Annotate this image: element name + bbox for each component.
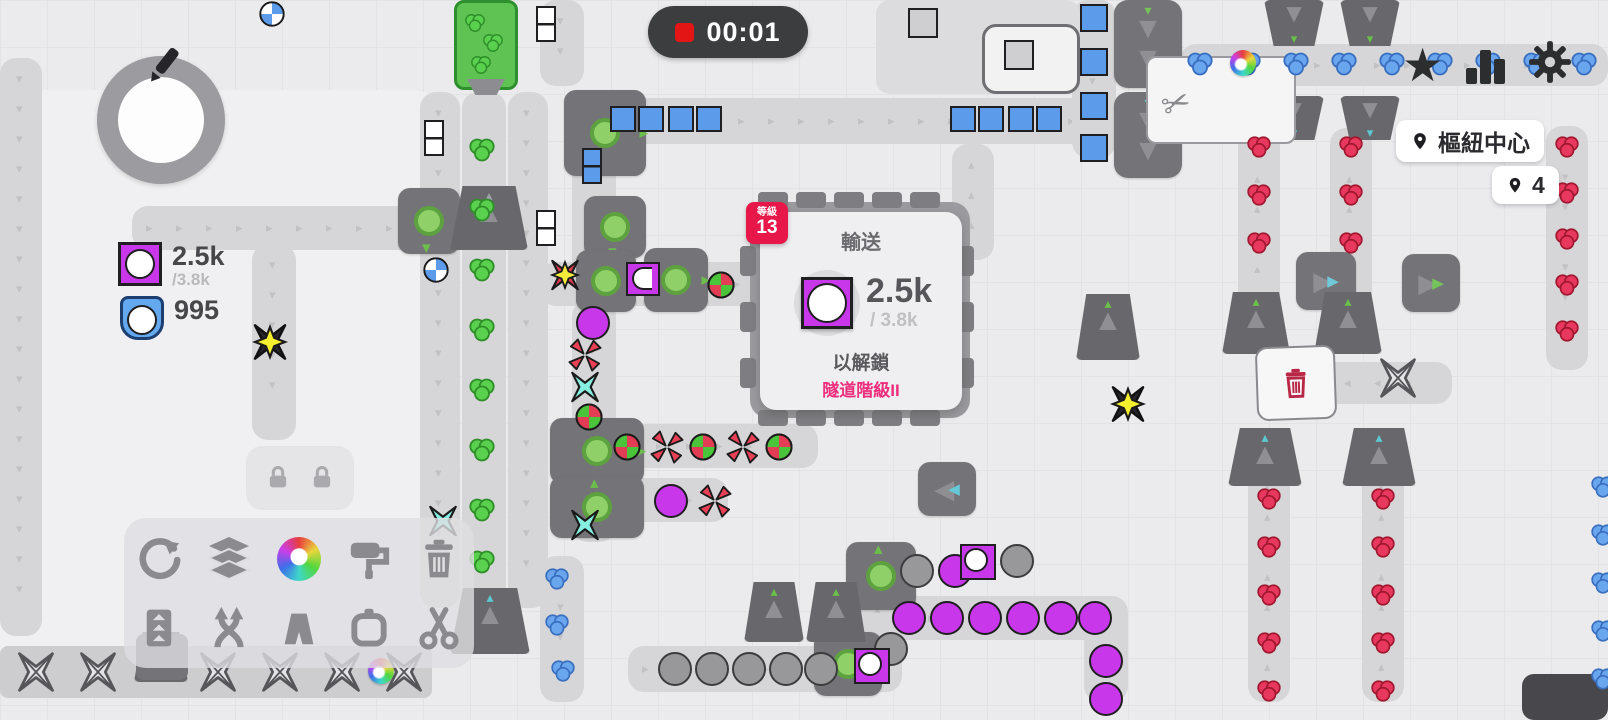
belt-chevron: ▴	[1378, 660, 1385, 673]
flow-arrow-icon: ▾	[422, 239, 431, 256]
red-berry-item	[1246, 134, 1272, 160]
belt-chevron: ▸	[888, 114, 895, 127]
bar-1	[1466, 68, 1477, 84]
belt-chevron: ▾	[16, 282, 23, 295]
circle-shape-item	[658, 652, 692, 686]
belt-chevron: ▾	[16, 162, 23, 175]
painted-target-item	[960, 544, 996, 580]
window-shape-item	[1004, 40, 1034, 70]
window-shape-item	[1080, 92, 1108, 120]
red-berry-item	[1338, 182, 1364, 208]
tunnel-arrow-icon: ▾	[1367, 32, 1374, 45]
rotate-button[interactable]	[131, 531, 187, 587]
lock-icon	[264, 464, 292, 492]
resource-target: /3.8k	[172, 270, 225, 290]
balancer-port	[866, 561, 896, 591]
balancer-machine[interactable]: ▸	[564, 90, 646, 176]
belt-chevron: ▾	[269, 288, 276, 301]
scissors-icon	[416, 605, 462, 651]
goal-unlock-text: 以解鎖	[760, 348, 962, 375]
belt-chevron: ▾	[435, 346, 442, 359]
circle-shape-item	[1089, 644, 1123, 678]
tunnel-arrow-icon: ▲	[1241, 304, 1271, 334]
belt-chevron: ▾	[435, 406, 442, 419]
red-trash-icon	[1278, 365, 1313, 400]
belt-chevron: ▴	[1264, 660, 1271, 673]
red-berry-item	[1370, 534, 1396, 560]
blue-gem-item	[1282, 50, 1310, 78]
yellow-star-item	[1108, 384, 1148, 424]
window-shape-item	[668, 106, 694, 132]
direction-triangle-icon: ▶	[1432, 276, 1444, 291]
green-gem-item	[468, 376, 496, 404]
tunnel-arrow-icon: ▲	[1364, 440, 1394, 470]
belt-chevron: ▾	[523, 556, 530, 569]
domino-shape-item	[582, 148, 602, 184]
uncolored-star-item	[1376, 356, 1420, 400]
hub-tooth	[740, 358, 756, 388]
pie-shape-item	[612, 432, 642, 462]
hub-tooth	[872, 410, 902, 426]
resource-counter-blue: 995	[120, 296, 219, 340]
hub-tooth	[796, 192, 826, 208]
belt-chevron: ▸	[266, 221, 273, 234]
balancer-port	[591, 266, 621, 296]
blue-gem-item	[1590, 618, 1608, 644]
blue-pie-shape-item	[422, 256, 450, 284]
frame-button[interactable]	[341, 600, 397, 656]
belt-chevron: ▾	[523, 436, 530, 449]
belt-chevron: ▾	[16, 402, 23, 415]
blue-gem-item	[1570, 50, 1598, 78]
red-berry-item	[1370, 486, 1396, 512]
blue-gem-item	[1330, 50, 1358, 78]
belt-chevron: ▾	[16, 522, 23, 535]
pie-shape-item	[688, 432, 718, 462]
cyan-star-item	[568, 508, 602, 542]
trash-icon	[417, 537, 461, 581]
belt-chevron: ▾	[523, 286, 530, 299]
belt-chevron: ▾	[435, 376, 442, 389]
tunnel-icon	[276, 605, 322, 651]
draw-mode-button[interactable]	[97, 50, 189, 142]
green-gem-item	[468, 316, 496, 344]
belt-chevron: ▾	[16, 372, 23, 385]
yellow-red-star-item	[548, 258, 582, 292]
tunnel-arrow-icon: ▲	[1250, 440, 1280, 470]
tunnel-entrance[interactable]: ▴▲	[1076, 294, 1140, 360]
window-shape-item	[696, 106, 722, 132]
delete-button[interactable]	[411, 531, 467, 587]
belt-chevron: ▾	[435, 166, 442, 179]
belt-chevron: ▾	[435, 466, 442, 479]
belt-lift-button[interactable]	[131, 600, 187, 656]
window-shape-item	[1080, 134, 1108, 162]
belt-chevron: ▸	[642, 662, 649, 675]
tunnel-entrance[interactable]: ▴▲	[1228, 428, 1302, 486]
balancer-machine[interactable]: ▾	[584, 196, 646, 258]
hub-marker-label: 樞紐中心	[1438, 124, 1530, 158]
belt-chevron: ▸	[768, 114, 775, 127]
circle-shape-item	[1044, 601, 1078, 635]
belt-chevron: ▴	[1254, 262, 1261, 275]
pin-count-value: 4	[1532, 172, 1545, 199]
bar-chart-icon[interactable]	[1466, 48, 1505, 84]
belt-chevron: ▾	[523, 136, 530, 149]
goal-reward: 隧道階級II	[760, 376, 962, 401]
tunnel-arrow-icon: ▲	[759, 594, 789, 624]
tunnel-arrow-icon: ▼	[1357, 0, 1383, 26]
belt-chevron: ▸	[828, 114, 835, 127]
balancer-port	[661, 265, 691, 295]
goal-shape	[794, 270, 860, 336]
belt-chevron: ▾	[557, 14, 564, 27]
paint-roller-icon	[346, 536, 392, 582]
cutter-button[interactable]	[411, 600, 467, 656]
hub-tooth	[796, 410, 826, 426]
belt-chevron: ▾	[523, 316, 530, 329]
hub-tooth	[740, 302, 756, 332]
belt-chevron: ▸	[206, 221, 213, 234]
window-shape-item	[610, 106, 636, 132]
circle-shape-item	[900, 554, 934, 588]
tunnel-exit[interactable]: ▼▾	[1264, 0, 1324, 46]
pin-count-marker[interactable]: 4	[1492, 166, 1559, 204]
uncolored-star-item	[76, 650, 120, 694]
circle-shape-item	[576, 306, 610, 340]
green-gem-item	[482, 32, 504, 54]
delivery-goal-popup[interactable]: 等級 13 輸送 2.5k / 3.8k 以解鎖 隧道階級II	[760, 212, 962, 410]
belt-chevron: ▾	[523, 166, 530, 179]
game-viewport[interactable]: ▾▾▾▾▾▾▾▾▾▾▾▾▾▾▾▾▾▾▸▸▸▸▸▸▸▸▸▾▾▾▾▾▾▾▾▾▾▾▾▾…	[0, 0, 1608, 720]
layers-icon	[205, 535, 253, 583]
belt-chevron: ▾	[523, 256, 530, 269]
balancer-port	[414, 206, 444, 236]
balancer-port	[600, 212, 630, 242]
hub-tooth	[758, 410, 788, 426]
hub-tooth	[740, 246, 756, 276]
red-berry-item	[1370, 630, 1396, 656]
red-pinwheel-item	[726, 430, 760, 464]
circle-shape-item	[654, 484, 688, 518]
red-pinwheel-item	[568, 338, 602, 372]
hub-tooth	[910, 192, 940, 208]
belt-chevron: ▾	[16, 252, 23, 265]
painter-button[interactable]	[341, 531, 397, 587]
green-gem-item	[468, 256, 496, 284]
hub-tooth	[834, 192, 864, 208]
belt-chevron: ▸	[918, 114, 925, 127]
belt-chevron: ▾	[435, 286, 442, 299]
blue-pie-shape-item	[258, 0, 286, 28]
circle-shape-item	[695, 652, 729, 686]
belt-chevron: ▸	[386, 221, 393, 234]
star-icon[interactable]: ★	[1402, 38, 1443, 92]
red-berry-item	[1554, 134, 1580, 160]
pin-icon	[1410, 131, 1430, 151]
lock-icon	[308, 464, 336, 492]
belt-chevron: ▾	[435, 106, 442, 119]
belt-chevron: ▾	[16, 552, 23, 565]
blue-gem-item	[1590, 522, 1608, 548]
red-pinwheel-item	[698, 484, 732, 518]
red-berry-item	[1256, 534, 1282, 560]
belt-chevron: ▾	[523, 376, 530, 389]
tunnel-button[interactable]	[271, 600, 327, 656]
window-shape-item	[1036, 106, 1062, 132]
belt-chevron: ▴	[968, 158, 975, 171]
flow-arrow-icon: ▴	[590, 474, 599, 491]
direction-triangle-icon: ◀	[948, 482, 960, 497]
belt-chevron: ▾	[16, 312, 23, 325]
green-gem-item	[468, 436, 496, 464]
resource-value: 995	[174, 296, 219, 324]
uncolored-star-item	[14, 650, 58, 694]
belt-chevron: ▾	[523, 106, 530, 119]
tunnel-arrow-icon: ▾	[1367, 126, 1374, 139]
red-berry-item	[1256, 582, 1282, 608]
circle-shape-item	[769, 652, 803, 686]
direction-triangle-icon: ▶	[1327, 274, 1339, 289]
red-berry-item	[1554, 318, 1580, 344]
layers-button[interactable]	[201, 531, 257, 587]
bar-2	[1480, 50, 1491, 84]
tunnel-arrow-icon: ▲	[821, 594, 851, 624]
belt-chevron: ▾	[523, 466, 530, 479]
belt-chevron: ▾	[523, 196, 530, 209]
timer: 00:01	[648, 6, 808, 58]
purple-circle-shape-icon	[118, 242, 162, 286]
yellow-star-item	[250, 322, 290, 362]
trash-building[interactable]	[1255, 345, 1338, 422]
tunnel-entrance[interactable]: ▴▲	[1222, 292, 1290, 354]
green-gem-item	[464, 12, 486, 34]
hub-tooth	[910, 410, 940, 426]
crossed-arrows-icon	[206, 605, 252, 651]
tunnel-arrow-icon: ▾	[1291, 32, 1298, 45]
belt-chevron: ▾	[16, 582, 23, 595]
belt-chevron: ▸	[798, 114, 805, 127]
belt-chevron: ▾	[16, 132, 23, 145]
goal-target: / 3.8k	[870, 310, 918, 332]
belt-chevron: ▾	[523, 406, 530, 419]
tunnel-arrow-icon: ▼	[1133, 14, 1163, 44]
red-berry-item	[1246, 182, 1272, 208]
belt-chevron: ▴	[968, 188, 975, 201]
edit-toolbar	[124, 518, 474, 668]
belt-chevron: ▸	[236, 221, 243, 234]
belt-chevron: ▾	[16, 492, 23, 505]
belt-chevron: ▾	[16, 432, 23, 445]
circle-shape-item	[892, 601, 926, 635]
belt-chevron: ▾	[523, 496, 530, 509]
red-berry-item	[1554, 272, 1580, 298]
circle-shape-item	[1000, 544, 1034, 578]
red-pinwheel-item	[650, 430, 684, 464]
belt-chevron: ▸	[296, 221, 303, 234]
tunnel-exit[interactable]: ▼▾	[1340, 0, 1400, 46]
red-berry-item	[1256, 678, 1282, 704]
rainbow-orb-item	[1230, 50, 1256, 76]
red-berry-item	[1256, 630, 1282, 656]
tunnel-arrow-icon: ▲	[1333, 304, 1363, 334]
belt-chevron: ▾	[269, 378, 276, 391]
tunnel-arrow-icon: ▼	[1281, 0, 1307, 26]
belt-chevron: ▾	[16, 462, 23, 475]
timer-value: 00:01	[706, 17, 780, 48]
green-gem-item	[468, 496, 496, 524]
resource-value: 2.5k	[172, 242, 225, 270]
goal-current: 2.5k	[866, 274, 932, 308]
belt-chevron: ▾	[269, 258, 276, 271]
belt-chevron: ▾	[435, 436, 442, 449]
red-berry-item	[1338, 230, 1364, 256]
blue-gem-item	[1590, 666, 1608, 692]
conveyor-belt[interactable]: ▾▾▾▾▾▾▾▾▾▾▾▾▾▾▾▾▾▾	[0, 58, 42, 636]
belt-chevron: ▾	[523, 526, 530, 539]
belt-chevron: ▸	[326, 221, 333, 234]
pie-shape-item	[764, 432, 794, 462]
belt-lift-icon	[138, 607, 180, 649]
window-shape-item	[908, 8, 938, 38]
blue-gem-item	[544, 566, 570, 592]
belt-chevron: ▾	[557, 44, 564, 57]
half-shape-item	[626, 262, 660, 296]
color-wheel-icon	[277, 537, 321, 581]
red-berry-item	[1370, 582, 1396, 608]
green-gem-item	[468, 136, 496, 164]
pin-icon	[1506, 176, 1524, 194]
router-machine[interactable]: ▶▶	[1402, 254, 1460, 312]
tunnel-arrow-icon: ▼	[1357, 96, 1383, 122]
belt-chevron: ▾	[16, 342, 23, 355]
hub-tooth	[834, 410, 864, 426]
belt-chevron: ▾	[523, 346, 530, 359]
belt-chevron: ▾	[16, 102, 23, 115]
red-berry-item	[1256, 486, 1282, 512]
red-berry-item	[1246, 230, 1272, 256]
blue-gem-item	[1186, 50, 1214, 78]
pie-shape-item	[574, 402, 604, 432]
blue-gem-item	[1590, 570, 1608, 596]
locked-slots-tab	[246, 446, 354, 510]
red-berry-item	[1554, 226, 1580, 252]
rotate-icon	[136, 536, 182, 582]
red-berry-item	[1370, 678, 1396, 704]
router-machine[interactable]: ◀◀	[918, 462, 976, 516]
belt-chevron: ▸	[1314, 58, 1321, 71]
green-gem-item	[470, 54, 492, 76]
blue-gem-item	[544, 612, 570, 638]
window-shape-item	[950, 106, 976, 132]
painted-target-item	[854, 648, 890, 684]
circle-shape-item	[930, 601, 964, 635]
domino-shape-item	[536, 6, 556, 42]
cyan-star-item	[568, 370, 602, 404]
blue-gem-item	[1590, 474, 1608, 500]
conveyor-belt[interactable]: ▾▾▾▾▾▾▾▾▾▾▾▾▾▾▾▾	[508, 92, 548, 608]
circle-shape-item	[732, 652, 766, 686]
circle-shape-item	[968, 601, 1002, 635]
belt-chevron: ▸	[738, 114, 745, 127]
pie-shape-item	[706, 270, 736, 300]
belt-chevron: ▾	[435, 316, 442, 329]
belt-chevron: ◂	[1344, 376, 1351, 389]
tunnel-arrow-icon: ▲	[475, 600, 505, 630]
domino-shape-item	[424, 120, 444, 156]
tunnel-entrance[interactable]: ▴▲	[806, 582, 866, 642]
blue-gem-item	[550, 658, 576, 684]
belt-chevron: ▾	[16, 192, 23, 205]
popup-title: 輸送	[760, 226, 962, 255]
hub-marker[interactable]: 樞紐中心	[1396, 120, 1544, 162]
belt-chevron: ▸	[176, 221, 183, 234]
balancer-port	[582, 436, 612, 466]
swapper-button[interactable]	[201, 600, 257, 656]
belt-chevron: ▾	[16, 222, 23, 235]
belt-chevron: ▾	[16, 72, 23, 85]
tunnel-arrow-icon: ▲	[1093, 306, 1123, 336]
window-shape-item	[1008, 106, 1034, 132]
red-berry-item	[1338, 134, 1364, 160]
scissors-deco-icon: ✂	[1156, 80, 1196, 127]
belt-chevron: ▸	[858, 114, 865, 127]
window-shape-item	[1080, 4, 1108, 32]
tunnel-entrance[interactable]: ▴▲	[744, 582, 804, 642]
circle-shape-item	[1089, 682, 1123, 716]
blue-circle-shape-icon	[120, 296, 164, 340]
domino-shape-item	[536, 210, 556, 246]
frame-icon	[347, 606, 391, 650]
belt-chevron: ▸	[146, 221, 153, 234]
window-shape-item	[1080, 48, 1108, 76]
record-square-icon	[675, 23, 694, 42]
gear-icon[interactable]	[1528, 40, 1572, 89]
tunnel-entrance[interactable]: ▴▲	[1342, 428, 1416, 486]
circle-shape-item	[1078, 601, 1112, 635]
pencil-icon	[143, 44, 185, 86]
resource-counter-purple: 2.5k /3.8k	[118, 242, 225, 290]
hub-tooth	[872, 192, 902, 208]
blueprint-area[interactable]: ✂	[1146, 56, 1296, 144]
window-shape-item	[978, 106, 1004, 132]
balancer-machine[interactable]: ▾	[398, 188, 460, 254]
flow-arrow-icon: ▴	[874, 540, 883, 557]
green-gem-item	[468, 196, 496, 224]
circle-shape-item	[1006, 601, 1040, 635]
circle-shape-item	[804, 652, 838, 686]
belt-chevron: ▸	[356, 221, 363, 234]
window-shape-item	[638, 106, 664, 132]
bar-3	[1494, 59, 1505, 84]
colors-button[interactable]	[271, 531, 327, 587]
